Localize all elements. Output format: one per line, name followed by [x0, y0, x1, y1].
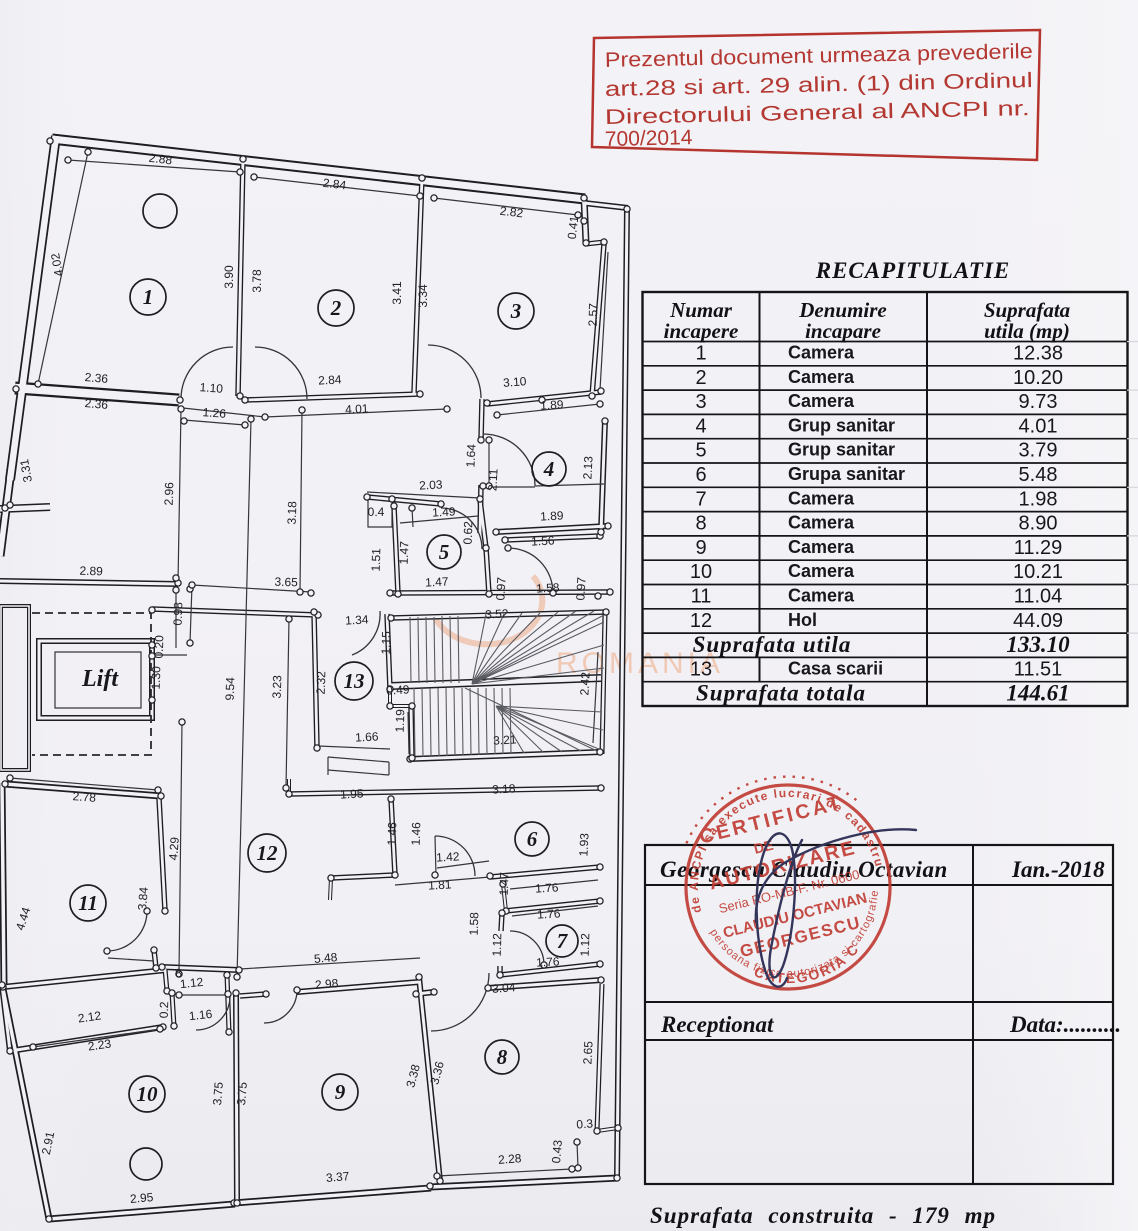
- svg-text:2.03: 2.03: [419, 477, 443, 492]
- svg-text:5.48: 5.48: [313, 950, 338, 966]
- svg-text:utila (mp): utila (mp): [984, 319, 1070, 343]
- svg-text:13: 13: [344, 669, 365, 693]
- svg-text:3.90: 3.90: [222, 265, 236, 289]
- svg-text:1.58: 1.58: [467, 912, 482, 936]
- svg-text:2: 2: [695, 367, 706, 389]
- svg-text:3.75: 3.75: [210, 1081, 226, 1106]
- svg-text:Camera: Camera: [788, 537, 855, 557]
- svg-text:0.41: 0.41: [565, 215, 582, 240]
- svg-text:12.38: 12.38: [1013, 343, 1063, 365]
- svg-text:5: 5: [695, 440, 706, 462]
- svg-text:1.58: 1.58: [536, 580, 560, 595]
- svg-text:10.21: 10.21: [1013, 561, 1063, 583]
- svg-text:3.78: 3.78: [250, 269, 264, 293]
- svg-text:9.54: 9.54: [223, 677, 238, 701]
- svg-text:1.46: 1.46: [385, 822, 400, 846]
- svg-text:10: 10: [137, 1082, 159, 1106]
- svg-text:8: 8: [497, 1045, 508, 1069]
- svg-text:Camera: Camera: [788, 367, 855, 387]
- svg-text:1.98: 1.98: [1019, 488, 1058, 510]
- svg-text:1.19: 1.19: [393, 709, 408, 733]
- svg-text:3.04: 3.04: [492, 980, 517, 996]
- svg-text:9: 9: [335, 1080, 346, 1104]
- svg-text:1.89: 1.89: [540, 508, 564, 523]
- svg-text:2.89: 2.89: [79, 564, 103, 579]
- svg-text:5: 5: [439, 540, 450, 564]
- svg-text:11.29: 11.29: [1014, 537, 1063, 559]
- svg-text:5.48: 5.48: [1019, 464, 1058, 486]
- svg-text:1.76: 1.76: [537, 906, 561, 921]
- svg-text:Lift: Lift: [81, 666, 119, 692]
- svg-text:0.2: 0.2: [157, 1001, 172, 1018]
- svg-text:3.23: 3.23: [270, 675, 285, 699]
- svg-text:9.73: 9.73: [1019, 391, 1058, 413]
- svg-text:3.10: 3.10: [503, 374, 528, 390]
- svg-text:6: 6: [695, 464, 706, 486]
- svg-text:2.32: 2.32: [314, 671, 329, 695]
- svg-text:1.81: 1.81: [428, 877, 452, 892]
- svg-text:0.4: 0.4: [368, 505, 385, 519]
- svg-text:7: 7: [695, 488, 706, 510]
- svg-text:Camera: Camera: [788, 513, 855, 533]
- svg-text:Camera: Camera: [788, 391, 855, 411]
- svg-text:10.20: 10.20: [1013, 367, 1063, 389]
- svg-text:0.97: 0.97: [493, 576, 508, 600]
- svg-text:2.13: 2.13: [580, 455, 595, 479]
- svg-text:Receptionat: Receptionat: [660, 1012, 774, 1037]
- svg-text:Grup sanitar: Grup sanitar: [788, 440, 895, 460]
- svg-text:Grup sanitar: Grup sanitar: [788, 415, 895, 435]
- svg-text:2.88: 2.88: [148, 151, 173, 168]
- svg-text:1.47: 1.47: [497, 872, 512, 896]
- svg-text:1.12: 1.12: [490, 933, 505, 957]
- svg-text:2.84: 2.84: [322, 176, 347, 193]
- svg-text:44.09: 44.09: [1013, 610, 1063, 632]
- svg-text:incapere: incapere: [664, 319, 739, 343]
- svg-text:700/2014: 700/2014: [605, 126, 693, 151]
- svg-text:2.95: 2.95: [129, 1190, 154, 1206]
- svg-text:0.97: 0.97: [573, 576, 588, 600]
- svg-text:Casa scarii: Casa scarii: [788, 659, 883, 679]
- svg-text:Camera: Camera: [788, 343, 855, 363]
- svg-text:1.42: 1.42: [436, 849, 460, 864]
- svg-text:4: 4: [695, 415, 706, 437]
- svg-text:6: 6: [527, 827, 538, 851]
- svg-text:3.21: 3.21: [493, 732, 517, 747]
- svg-text:1.56: 1.56: [531, 533, 555, 548]
- svg-text:4.29: 4.29: [166, 836, 182, 861]
- svg-text:1.30: 1.30: [149, 666, 164, 690]
- svg-text:Suprafata totala: Suprafata totala: [696, 681, 866, 706]
- svg-text:1.47: 1.47: [397, 541, 412, 565]
- svg-text:9: 9: [695, 537, 706, 559]
- svg-text:3.52: 3.52: [485, 606, 509, 621]
- svg-text:RECAPITULATIE: RECAPITULATIE: [815, 258, 1010, 283]
- svg-text:1.66: 1.66: [355, 729, 379, 744]
- svg-text:3.41: 3.41: [390, 281, 404, 305]
- svg-text:2.42: 2.42: [577, 671, 592, 695]
- svg-text:3.65: 3.65: [274, 575, 298, 590]
- svg-text:7: 7: [557, 929, 569, 953]
- svg-text:2.65: 2.65: [580, 1040, 595, 1064]
- svg-text:3.18: 3.18: [285, 501, 300, 525]
- svg-text:12: 12: [257, 841, 279, 865]
- svg-text:0.43: 0.43: [549, 1139, 565, 1164]
- svg-text:3.37: 3.37: [325, 1169, 350, 1185]
- svg-text:2: 2: [330, 296, 342, 320]
- svg-text:0.3: 0.3: [576, 1116, 594, 1131]
- svg-text:Suprafata construita - 179: Suprafata construita - 179 mp: [650, 1203, 996, 1228]
- svg-text:1.12: 1.12: [578, 933, 593, 957]
- svg-text:2.11: 2.11: [485, 468, 500, 491]
- svg-text:4.01: 4.01: [1019, 415, 1058, 437]
- svg-text:13: 13: [690, 659, 712, 681]
- svg-text:11: 11: [78, 891, 98, 915]
- svg-text:1: 1: [143, 285, 154, 309]
- svg-text:3.75: 3.75: [234, 1081, 250, 1106]
- svg-text:2.36: 2.36: [84, 396, 109, 412]
- svg-text:8.90: 8.90: [1019, 513, 1058, 535]
- svg-text:Hol: Hol: [788, 610, 817, 630]
- svg-text:11.51: 11.51: [1014, 659, 1063, 681]
- svg-text:1.12: 1.12: [179, 975, 204, 991]
- svg-text:Grupa sanitar: Grupa sanitar: [788, 464, 905, 484]
- svg-text:11: 11: [691, 586, 712, 608]
- svg-text:11.04: 11.04: [1014, 586, 1063, 608]
- svg-text:1.16: 1.16: [188, 1007, 213, 1023]
- svg-text:1.26: 1.26: [202, 405, 227, 421]
- svg-text:2.78: 2.78: [72, 789, 97, 805]
- svg-text:10: 10: [690, 561, 712, 583]
- svg-text:Suprafata utila: Suprafata utila: [693, 632, 852, 657]
- svg-text:1.95: 1.95: [340, 786, 364, 801]
- svg-text:1.47: 1.47: [425, 574, 449, 589]
- svg-text:1.76: 1.76: [535, 880, 559, 895]
- svg-text:0.98: 0.98: [171, 602, 186, 626]
- svg-text:2.28: 2.28: [498, 1151, 523, 1167]
- svg-text:2.36: 2.36: [84, 370, 109, 386]
- svg-text:1: 1: [695, 343, 706, 365]
- svg-text:144.61: 144.61: [1006, 681, 1069, 706]
- svg-text:1.34: 1.34: [345, 612, 369, 627]
- svg-text:4: 4: [543, 457, 555, 481]
- svg-text:3.34: 3.34: [416, 284, 430, 308]
- svg-text:2.57: 2.57: [586, 303, 601, 327]
- svg-text:3.79: 3.79: [1019, 440, 1058, 462]
- svg-text:3.18: 3.18: [492, 781, 516, 796]
- svg-text:1.49: 1.49: [432, 504, 456, 519]
- svg-text:1.64: 1.64: [463, 443, 478, 467]
- svg-text:3: 3: [510, 299, 522, 323]
- svg-text:2.84: 2.84: [318, 372, 342, 387]
- svg-text:Camera: Camera: [788, 488, 855, 508]
- svg-text:3: 3: [695, 391, 706, 413]
- svg-text:3.84: 3.84: [135, 886, 151, 911]
- svg-text:0.62: 0.62: [461, 521, 476, 545]
- svg-text:2.98: 2.98: [314, 976, 339, 992]
- svg-text:1.10: 1.10: [199, 380, 224, 396]
- svg-text:133.10: 133.10: [1006, 632, 1070, 657]
- svg-text:8: 8: [695, 513, 706, 535]
- svg-text:1.51: 1.51: [369, 548, 384, 572]
- svg-text:1.46: 1.46: [409, 822, 424, 846]
- svg-text:1.89: 1.89: [540, 397, 564, 412]
- svg-text:12: 12: [690, 610, 712, 632]
- svg-text:0.20: 0.20: [152, 635, 167, 659]
- svg-text:Camera: Camera: [788, 586, 855, 606]
- svg-text:4.01: 4.01: [345, 401, 369, 416]
- svg-text:1.15: 1.15: [379, 631, 394, 655]
- svg-text:incapare: incapare: [805, 319, 881, 343]
- svg-text:1.93: 1.93: [576, 832, 591, 856]
- svg-text:2.96: 2.96: [162, 482, 177, 506]
- svg-text:Camera: Camera: [788, 561, 855, 581]
- svg-text:Ian.-2018: Ian.-2018: [1011, 857, 1105, 882]
- svg-text:2.82: 2.82: [499, 204, 524, 221]
- svg-text:Data:..........: Data:..........: [1009, 1012, 1121, 1037]
- svg-text:0.49: 0.49: [386, 682, 410, 697]
